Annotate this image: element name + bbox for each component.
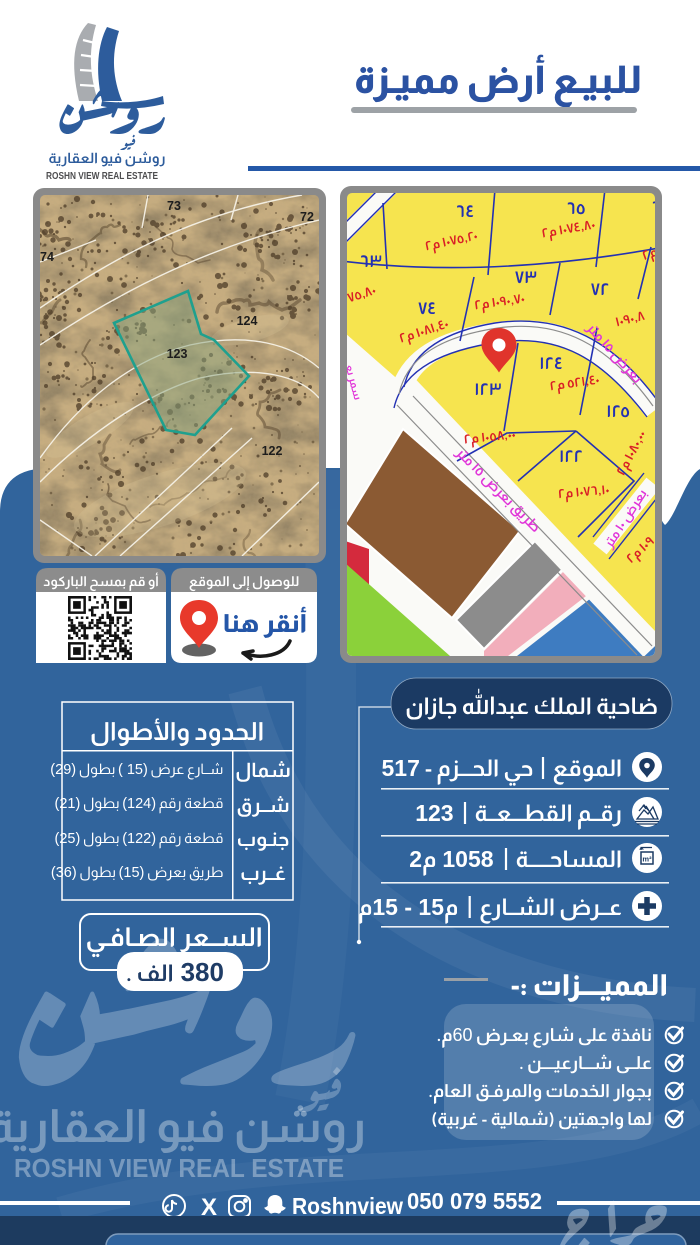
- svg-text:(122): (122): [122, 831, 156, 847]
- svg-text:( 15): ( 15): [118, 762, 148, 778]
- svg-text:(21): (21): [55, 796, 81, 812]
- svg-text:517: 517: [382, 755, 420, 781]
- svg-text:123: 123: [415, 800, 453, 826]
- svg-text:ROSHN VIEW REAL ESTATE: ROSHN VIEW REAL ESTATE: [14, 1153, 344, 1183]
- svg-text:380: 380: [181, 957, 224, 987]
- svg-text:Roshnview: Roshnview: [292, 1193, 403, 1219]
- svg-text:72: 72: [300, 210, 314, 224]
- svg-text:74: 74: [40, 250, 54, 264]
- svg-text:(124): (124): [122, 796, 156, 812]
- svg-text:73: 73: [167, 199, 181, 213]
- svg-text:(29): (29): [50, 762, 76, 778]
- svg-text:ROSHN VIEW REAL ESTATE: ROSHN VIEW REAL ESTATE: [46, 171, 158, 182]
- svg-text:124: 124: [237, 314, 258, 328]
- svg-text:m²: m²: [642, 855, 652, 864]
- svg-text:1058: 1058: [442, 846, 493, 872]
- svg-text:122: 122: [262, 444, 283, 458]
- svg-text:60: 60: [453, 1025, 473, 1045]
- svg-text:15 - 15: 15 - 15: [372, 894, 444, 920]
- svg-text:(36): (36): [51, 865, 77, 881]
- svg-text:123: 123: [167, 347, 188, 361]
- svg-text:2: 2: [409, 846, 422, 872]
- svg-text:050 079 5552: 050 079 5552: [407, 1188, 542, 1214]
- svg-text:(25): (25): [55, 831, 81, 847]
- svg-text:(15): (15): [119, 865, 145, 881]
